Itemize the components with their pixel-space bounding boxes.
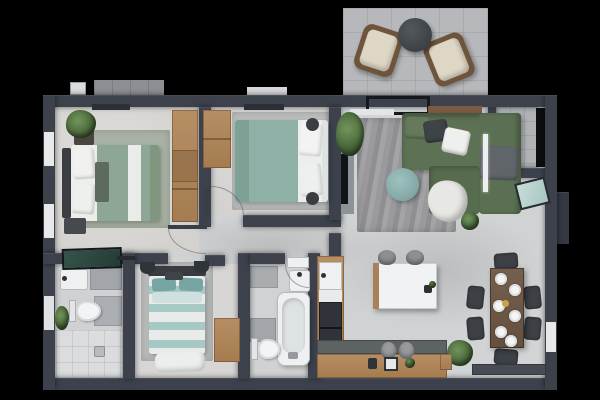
master-bed-headboard xyxy=(62,148,71,218)
bath2-toilet-tank xyxy=(251,338,258,360)
window-bath1-left xyxy=(44,296,54,330)
bath1-shower-drain xyxy=(94,346,105,357)
door-leaf-bed2 xyxy=(204,186,210,217)
wall-bath1-bed3 xyxy=(123,253,135,378)
dining-chair-right2 xyxy=(523,316,542,340)
kitchen-small-appliance xyxy=(368,358,377,369)
living-plant-large xyxy=(336,112,364,156)
kitchen-fridge-split xyxy=(319,327,342,329)
bed3-pillow-b xyxy=(179,277,204,291)
sofa-pillow-white xyxy=(441,127,472,157)
kitchen-counter-white xyxy=(319,290,342,302)
bed3-sconce-right xyxy=(194,261,209,273)
bath1-shower-glass-panel xyxy=(62,247,123,270)
bedroom2-dresser-line xyxy=(203,138,231,140)
tv xyxy=(341,154,348,204)
kitchen-counter-bottom xyxy=(317,354,447,378)
dining-chair-right1 xyxy=(523,285,542,310)
bath2-wall-tiles-a xyxy=(250,266,278,288)
patio-armchair-left-cushion xyxy=(358,28,399,73)
dining-chair-left1 xyxy=(466,285,485,310)
counter-stool-b xyxy=(399,342,414,359)
dining-plant-crate xyxy=(440,354,452,370)
coffee-machine xyxy=(384,357,398,371)
bath2-tub-faucet xyxy=(288,352,298,359)
dining-plate-4 xyxy=(509,310,521,322)
kitchen-island-wood-edge xyxy=(373,263,379,309)
round-pouf xyxy=(386,168,419,201)
master-wardrobe xyxy=(172,110,198,222)
dining-plate-2 xyxy=(509,284,521,296)
kitchen-counter-plant xyxy=(405,358,415,368)
living-floor-lamp-strip xyxy=(483,134,488,192)
master-wardrobe-shelf-shade xyxy=(172,150,198,182)
exterior-window-sill xyxy=(247,87,287,95)
master-wardrobe-divider xyxy=(172,188,198,190)
bath1-toilet-tank xyxy=(69,300,76,322)
bath1-glass-rail xyxy=(117,256,135,260)
patio-armchair-right-cushion xyxy=(427,36,471,82)
master-bed-pillow-a xyxy=(72,148,96,179)
nightstand-bottom xyxy=(64,218,86,234)
bed3-sconce-left xyxy=(140,262,155,274)
exterior-window-ledge xyxy=(94,80,164,96)
bath2-bathtub-basin xyxy=(282,298,305,354)
entrance-doormat xyxy=(472,364,546,375)
dining-plate-6 xyxy=(505,335,517,347)
window-bed1-left-a xyxy=(44,132,54,166)
island-bar-stool-a xyxy=(378,250,396,265)
exterior-ac-box xyxy=(70,82,86,95)
master-bed-runner xyxy=(95,162,109,202)
bed3-pillow-dark xyxy=(165,272,183,280)
bedroom2-floor-cushion-b xyxy=(306,192,319,205)
bed3-wardrobe xyxy=(214,318,240,362)
master-bed-pillow-b xyxy=(72,183,96,214)
living-plant-small xyxy=(461,212,479,230)
bed3-pillow-row2 xyxy=(152,292,202,303)
shower-floor xyxy=(56,330,122,377)
dining-plate-1 xyxy=(495,273,507,285)
wall-bath2-top xyxy=(250,253,285,264)
curtain-rail-bed2 xyxy=(244,104,284,110)
wall-bed2-bottom xyxy=(243,215,341,227)
dining-centerpiece xyxy=(502,300,509,307)
curtain-rail-bed1 xyxy=(92,104,130,110)
patio-round-table xyxy=(398,18,432,52)
floorplan-render xyxy=(0,0,600,400)
outer-wall-bottom xyxy=(43,378,557,390)
island-decor-plant xyxy=(429,281,436,288)
bath1-faucet xyxy=(62,276,67,281)
window-dining-right xyxy=(546,322,556,352)
window-bed1-left-b xyxy=(44,204,54,238)
bed3-foot-blanket xyxy=(155,351,206,373)
dining-plate-5 xyxy=(495,326,507,338)
kitchen-sink-faucet xyxy=(321,273,326,278)
bath1-plant xyxy=(55,306,69,330)
bedroom2-dresser xyxy=(203,110,231,168)
bath1-wall-tiles-a xyxy=(90,268,122,290)
master-bedroom-plant xyxy=(66,110,96,138)
dining-chair-left2 xyxy=(466,316,485,340)
island-bar-stool-b xyxy=(406,250,424,265)
bedroom2-floor-cushion-a xyxy=(306,118,319,131)
right-wall-bump xyxy=(557,192,569,244)
